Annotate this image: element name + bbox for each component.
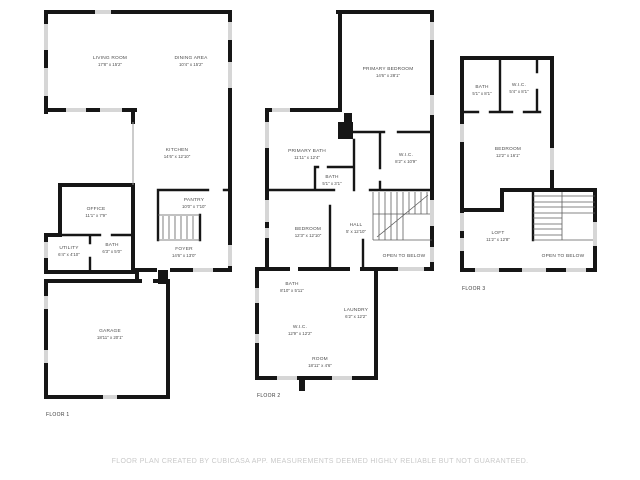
room-label-bedroom-floor2: BEDROOM [295, 226, 321, 232]
floor-2-fireplace [338, 122, 353, 139]
floor-2-wall-stub [299, 378, 305, 391]
room-dims-bedroom-floor2: 12'3" x 12'10" [295, 233, 322, 238]
room-dims-wic-upper: 8'2" x 10'9" [395, 159, 417, 164]
room-label-open-to-below-floor2: OPEN TO BELOW [383, 253, 426, 259]
disclaimer-text: FLOOR PLAN CREATED BY CUBICASA APP. MEAS… [0, 458, 640, 465]
room-dims-pantry: 10'0" x 7'10" [182, 204, 207, 209]
room-dims-kitchen: 14'6" x 12'10" [164, 154, 191, 159]
floor-3-plan: BATH 5'1" x 8'1" W.I.C. 5'4" x 8'1" BEDR… [460, 58, 597, 292]
floor-1-label: FLOOR 1 [46, 412, 70, 418]
room-dims-room: 18'11" x 4'6" [308, 363, 332, 368]
room-label-utility: UTILITY [59, 245, 79, 251]
room-dims-wic-lower: 12'9" x 12'2" [288, 331, 313, 336]
floor-2-plan: PRIMARY BEDROOM 14'6" x 28'1" PRIMARY BA… [255, 12, 434, 399]
room-dims-living-room: 17'8" x 15'2" [98, 62, 123, 67]
room-label-wic-upper: W.I.C. [399, 152, 413, 158]
room-dims-foyer: 14'6" x 13'0" [172, 253, 197, 258]
room-label-primary-bedroom: PRIMARY BEDROOM [363, 66, 414, 72]
floor-1-staircase [158, 215, 200, 240]
room-label-wic-floor3: W.I.C. [512, 82, 526, 88]
room-label-bath-small: BATH [325, 174, 339, 180]
room-label-kitchen: KITCHEN [166, 147, 189, 153]
floor-2-label: FLOOR 2 [257, 393, 281, 399]
room-dims-office: 11'1" x 7'9" [85, 213, 107, 218]
floor-3-staircase [533, 192, 595, 240]
room-label-open-to-below-floor3: OPEN TO BELOW [542, 253, 585, 259]
floor-1-interior-walls [60, 190, 230, 272]
room-label-living-room: LIVING ROOM [93, 55, 127, 61]
floor-plan-image: LIVING ROOM 17'8" x 15'2" DINING AREA 10… [0, 0, 640, 480]
room-label-dining-area: DINING AREA [174, 55, 208, 61]
room-dims-wic-floor3: 5'4" x 8'1" [509, 89, 529, 94]
room-dims-laundry: 6'2" x 12'2" [345, 314, 367, 319]
room-label-garage: GARAGE [99, 328, 121, 334]
room-dims-bath-floor1: 6'3" x 5'0" [102, 249, 122, 254]
room-dims-utility: 6'4" x 4'10" [58, 252, 80, 257]
floor-3-label: FLOOR 3 [462, 286, 486, 292]
floor-2-windows [255, 22, 434, 380]
room-label-primary-bath: PRIMARY BATH [288, 148, 326, 154]
room-dims-primary-bath: 11'11" x 12'4" [294, 155, 320, 160]
room-dims-hall: 5' x 12'10" [346, 229, 367, 234]
room-dims-bath-small: 5'1" x 3'1" [322, 181, 342, 186]
room-label-pantry: PANTRY [184, 197, 205, 203]
room-label-bath-lower: BATH [285, 281, 299, 287]
room-label-loft: LOFT [491, 230, 504, 236]
room-dims-bath-lower: 8'10" x 5'11" [280, 288, 304, 293]
floor-1-entry-door [158, 270, 168, 284]
room-dims-primary-bedroom: 14'6" x 28'1" [376, 73, 401, 78]
room-label-laundry: LAUNDRY [344, 307, 369, 313]
room-label-office: OFFICE [87, 206, 106, 212]
floor-2-fireplace-vent [344, 113, 352, 122]
floor-3-windows [460, 124, 597, 272]
room-label-bath-floor3: BATH [475, 84, 489, 90]
room-label-bedroom-floor3: BEDROOM [495, 146, 521, 152]
room-label-hall: HALL [350, 222, 363, 228]
floor-2-staircase [373, 192, 432, 240]
room-label-wic-lower: W.I.C. [293, 324, 307, 330]
room-dims-bedroom-floor3: 12'2" x 16'1" [496, 153, 521, 158]
room-dims-garage: 18'11" x 20'1" [97, 335, 124, 340]
room-dims-loft: 11'2" x 12'8" [486, 237, 510, 242]
room-dims-dining-area: 10'4" x 15'2" [179, 62, 204, 67]
room-label-bath-floor1: BATH [105, 242, 119, 248]
room-dims-bath-floor3: 5'1" x 8'1" [472, 91, 492, 96]
room-label-room: ROOM [312, 356, 328, 362]
floor-1-plan: LIVING ROOM 17'8" x 15'2" DINING AREA 10… [44, 10, 232, 418]
room-label-foyer: FOYER [175, 246, 193, 252]
